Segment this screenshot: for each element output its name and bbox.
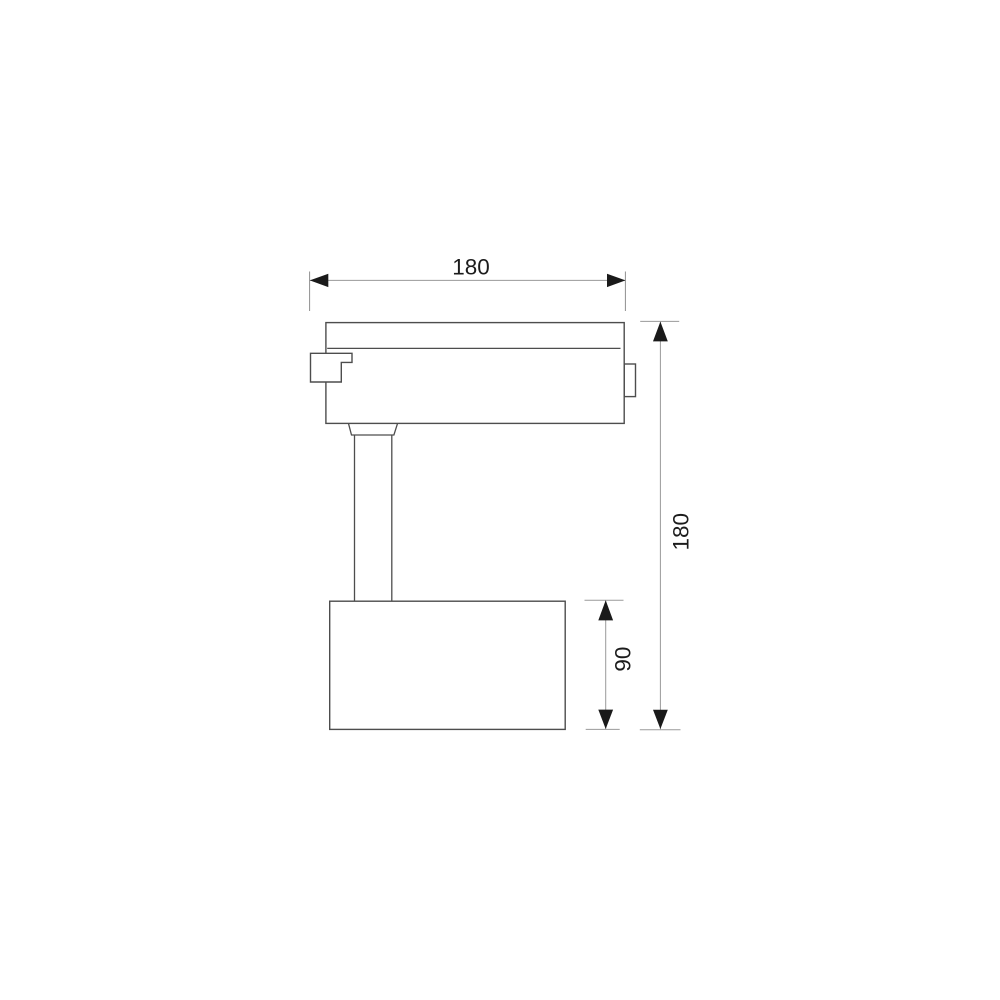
svg-text:180: 180 — [452, 255, 490, 280]
svg-text:90: 90 — [611, 647, 636, 672]
svg-text:180: 180 — [668, 513, 693, 551]
